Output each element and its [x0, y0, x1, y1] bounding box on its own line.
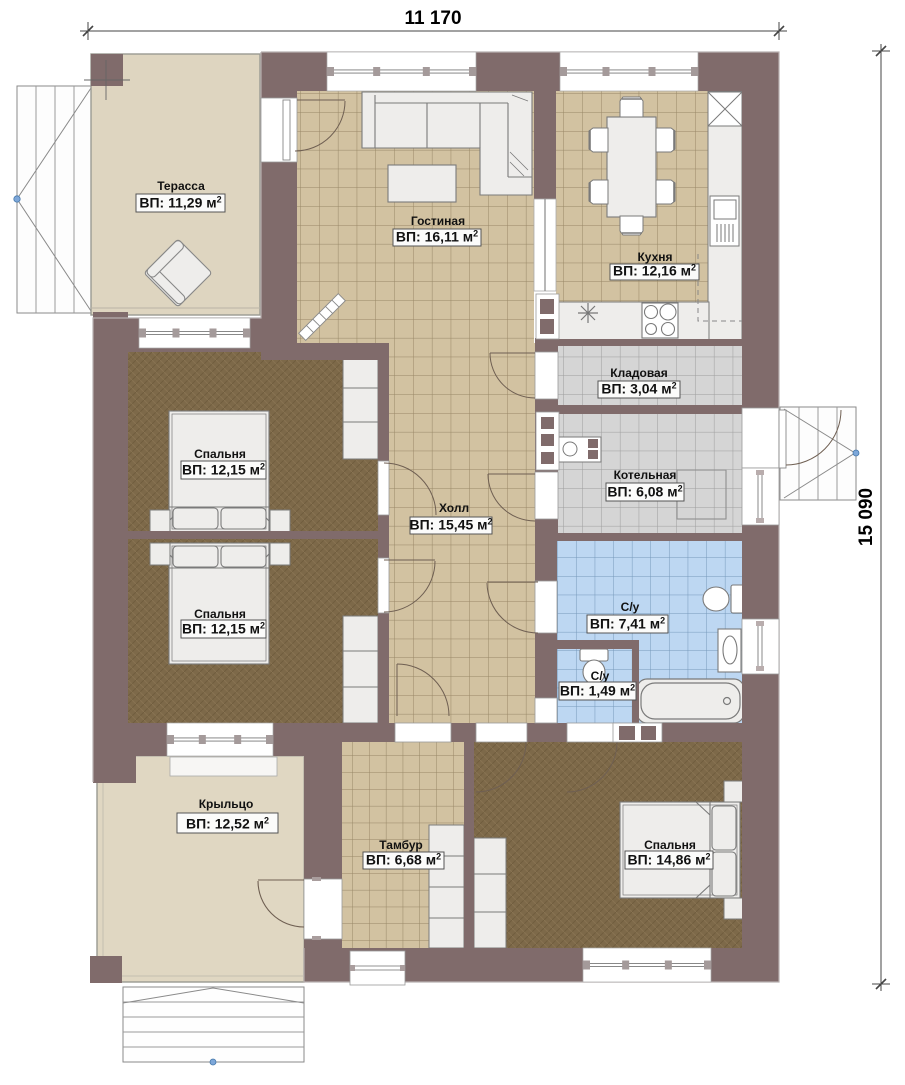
svg-text:ВП: 1,49 м2: ВП: 1,49 м2 [560, 683, 635, 699]
svg-text:Спальня: Спальня [194, 447, 246, 461]
svg-text:ВП: 14,86 м2: ВП: 14,86 м2 [627, 852, 710, 868]
svg-text:ВП: 3,04 м2: ВП: 3,04 м2 [601, 381, 676, 397]
svg-text:ВП: 12,15 м2: ВП: 12,15 м2 [182, 621, 265, 637]
svg-text:ВП: 15,45 м2: ВП: 15,45 м2 [409, 517, 492, 533]
svg-text:Тамбур: Тамбур [379, 838, 423, 852]
svg-text:11 170: 11 170 [404, 8, 461, 29]
svg-text:Котельная: Котельная [614, 468, 677, 482]
svg-text:Спальня: Спальня [194, 607, 246, 621]
svg-text:ВП: 7,41 м2: ВП: 7,41 м2 [590, 616, 665, 632]
svg-text:С/у: С/у [591, 669, 610, 683]
svg-text:Гостиная: Гостиная [411, 214, 465, 228]
svg-text:ВП: 6,68 м2: ВП: 6,68 м2 [366, 852, 441, 868]
svg-text:ВП: 12,15 м2: ВП: 12,15 м2 [182, 462, 265, 478]
svg-text:Крыльцо: Крыльцо [199, 797, 254, 811]
svg-text:Терасса: Терасса [157, 179, 205, 193]
svg-text:Кладовая: Кладовая [610, 366, 667, 380]
svg-text:Холл: Холл [439, 501, 469, 515]
svg-text:ВП: 11,29 м2: ВП: 11,29 м2 [139, 195, 221, 211]
svg-text:ВП: 12,52 м2: ВП: 12,52 м2 [186, 816, 269, 832]
svg-text:С/у: С/у [621, 600, 640, 614]
svg-text:ВП: 6,08 м2: ВП: 6,08 м2 [607, 484, 682, 500]
svg-text:Спальня: Спальня [644, 838, 696, 852]
svg-text:ВП: 16,11 м2: ВП: 16,11 м2 [396, 229, 478, 245]
svg-text:15 090: 15 090 [856, 488, 877, 546]
svg-text:ВП: 12,16 м2: ВП: 12,16 м2 [613, 263, 696, 279]
